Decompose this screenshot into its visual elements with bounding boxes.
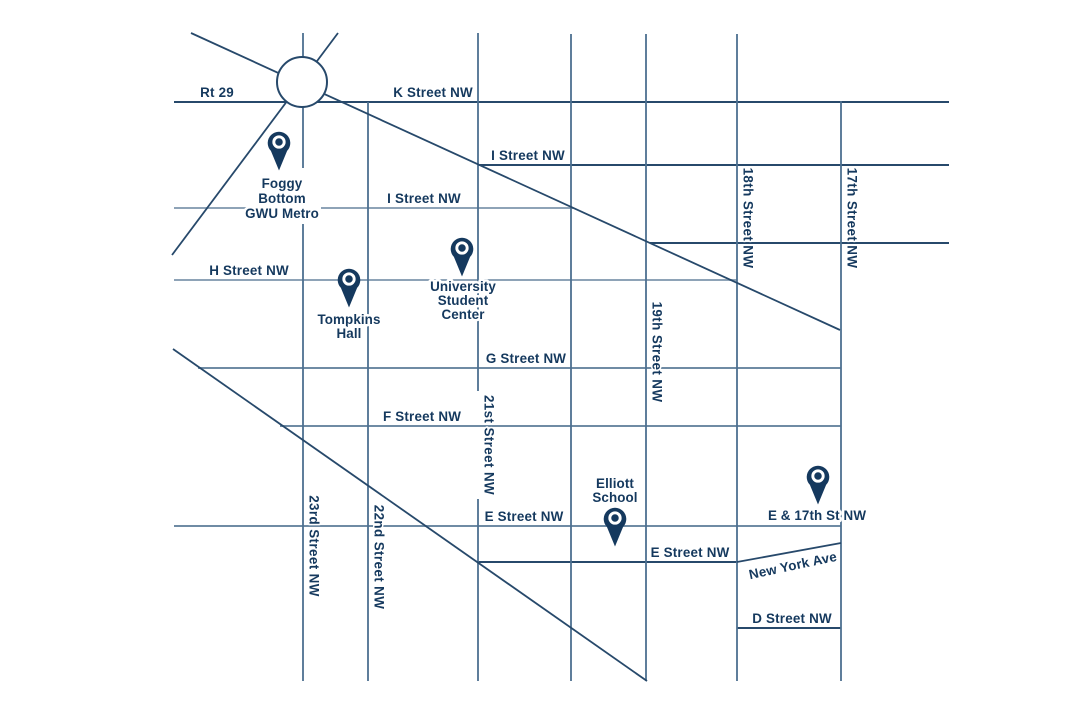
washington-circle bbox=[277, 57, 327, 107]
street-labels: Rt 29 K Street NW I Street NW I Street N… bbox=[200, 85, 859, 626]
campus-map: Rt 29 K Street NW I Street NW I Street N… bbox=[0, 0, 1081, 721]
street-label-i-lower: I Street NW bbox=[387, 191, 461, 206]
street-label-e-upper: E Street NW bbox=[485, 509, 564, 524]
street-label-g: G Street NW bbox=[486, 351, 566, 366]
street-label-19th: 19th Street NW bbox=[650, 302, 665, 403]
pin-elliott-school[interactable] bbox=[604, 508, 627, 547]
pin-labels: Foggy Bottom GWU Metro Tompkins Hall Uni… bbox=[245, 176, 866, 523]
street-label-23rd: 23rd Street NW bbox=[307, 495, 322, 597]
pin-label-elliott-line2: School bbox=[592, 490, 637, 505]
map-canvas: Rt 29 K Street NW I Street NW I Street N… bbox=[0, 0, 1081, 721]
pin-label-student-center-line2: Student bbox=[438, 293, 489, 308]
street-label-k: K Street NW bbox=[393, 85, 473, 100]
pin-label-tompkins-line2: Hall bbox=[337, 326, 362, 341]
pin-label-foggy-line3: GWU Metro bbox=[245, 206, 319, 221]
street-label-i-upper: I Street NW bbox=[491, 148, 565, 163]
street-label-rt29: Rt 29 bbox=[200, 85, 234, 100]
pin-label-e-17th: E & 17th St NW bbox=[768, 508, 866, 523]
street-label-new-york-ave: New York Ave bbox=[748, 549, 839, 582]
pin-tompkins-hall[interactable] bbox=[338, 269, 361, 308]
street-label-f: F Street NW bbox=[383, 409, 461, 424]
virginia-ave-line bbox=[173, 349, 647, 681]
street-label-h: H Street NW bbox=[209, 263, 289, 278]
street-label-17th: 17th Street NW bbox=[845, 168, 860, 269]
pin-label-tompkins-line1: Tompkins bbox=[317, 312, 380, 327]
pin-e-and-17th[interactable] bbox=[807, 466, 830, 505]
pin-label-elliott-line1: Elliott bbox=[596, 476, 634, 491]
pin-label-student-center-line1: University bbox=[430, 279, 496, 294]
street-label-e-lower: E Street NW bbox=[651, 545, 730, 560]
pin-foggy-bottom-gwu-metro[interactable] bbox=[268, 132, 291, 171]
pin-label-student-center-line3: Center bbox=[441, 307, 485, 322]
street-label-21st: 21st Street NW bbox=[482, 395, 497, 495]
street-label-d: D Street NW bbox=[752, 611, 832, 626]
pin-label-foggy-line1: Foggy bbox=[262, 176, 303, 191]
street-label-18th: 18th Street NW bbox=[741, 168, 756, 269]
pin-university-student-center[interactable] bbox=[451, 238, 474, 277]
pin-label-foggy-line2: Bottom bbox=[258, 191, 305, 206]
street-label-22nd: 22nd Street NW bbox=[372, 505, 387, 610]
